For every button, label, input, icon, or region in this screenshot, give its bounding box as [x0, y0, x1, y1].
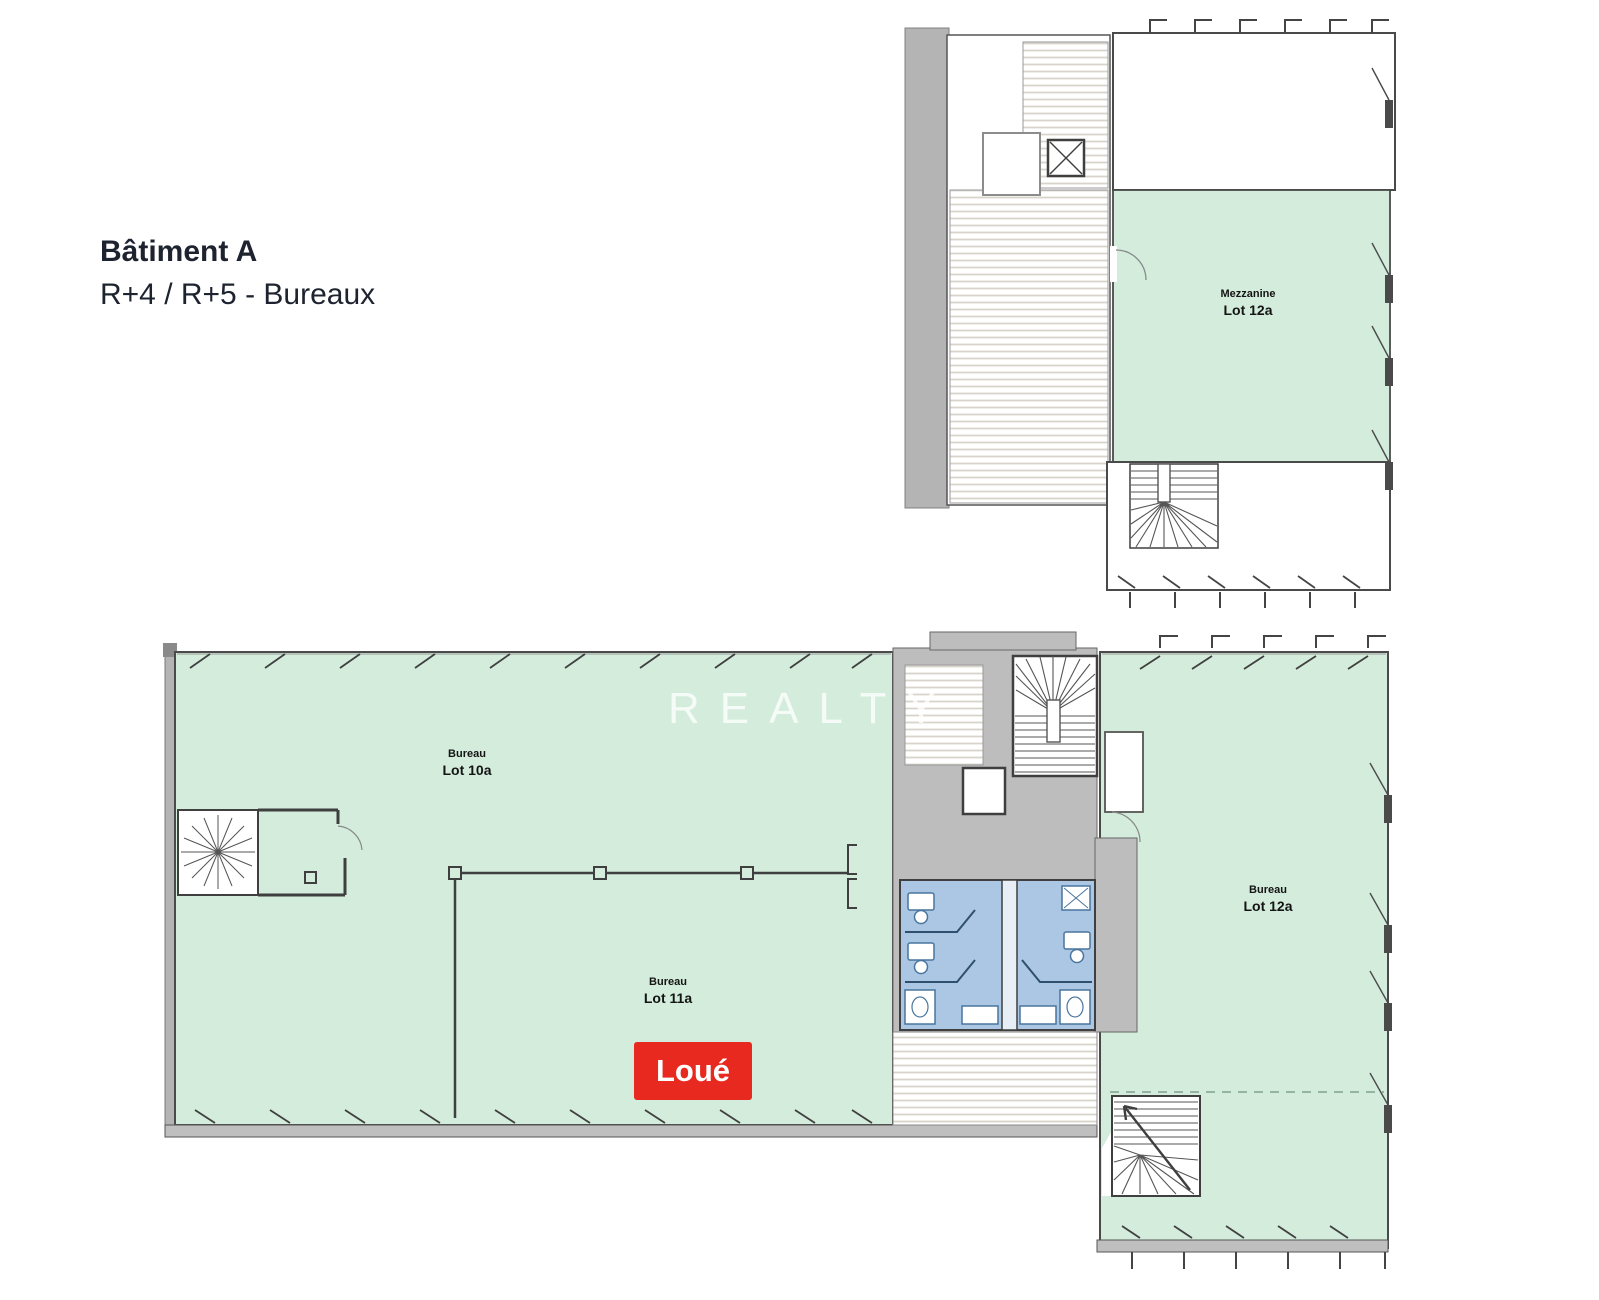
closet: [1105, 732, 1143, 812]
building-subtitle: R+4 / R+5 - Bureaux: [100, 278, 375, 312]
core-stairwell-icon: [1013, 656, 1097, 776]
room-label-lot12a: Bureau Lot 12a: [1243, 884, 1292, 914]
extension-bottom-wall: [1097, 1240, 1388, 1252]
upper-terrace-room: [1113, 33, 1395, 190]
rented-status-badge: Loué: [634, 1042, 752, 1100]
bottom-wall: [165, 1125, 1097, 1137]
building-title: Bâtiment A: [100, 234, 375, 270]
extension-stair-icon: [1112, 1096, 1200, 1196]
lower-hatch-strip: [893, 1032, 1097, 1125]
title-block: Bâtiment A R+4 / R+5 - Bureaux: [100, 234, 375, 312]
room-label-mezzanine: Mezzanine Lot 12a: [1220, 288, 1275, 318]
window-ticks-top: [1150, 20, 1389, 33]
shaft: [983, 133, 1040, 195]
left-wall: [165, 645, 175, 1137]
winder-stair-icon: [1130, 464, 1218, 548]
mezzanine-room: [1113, 190, 1390, 462]
realty-watermark: REALTY: [668, 684, 956, 734]
upper-floor-plan: [905, 20, 1395, 608]
room-label-lot11a: Bureau Lot 11a: [644, 976, 692, 1006]
balcony-wall: [905, 28, 949, 508]
floor-plan-drawing: [0, 0, 1599, 1300]
stair-hatch-lower: [950, 190, 1108, 503]
core-elevator-icon: [963, 768, 1005, 814]
elevator-icon: [1048, 140, 1084, 176]
room-label-lot10a: Bureau Lot 10a: [442, 748, 491, 778]
bathroom-block: [900, 880, 1095, 1030]
